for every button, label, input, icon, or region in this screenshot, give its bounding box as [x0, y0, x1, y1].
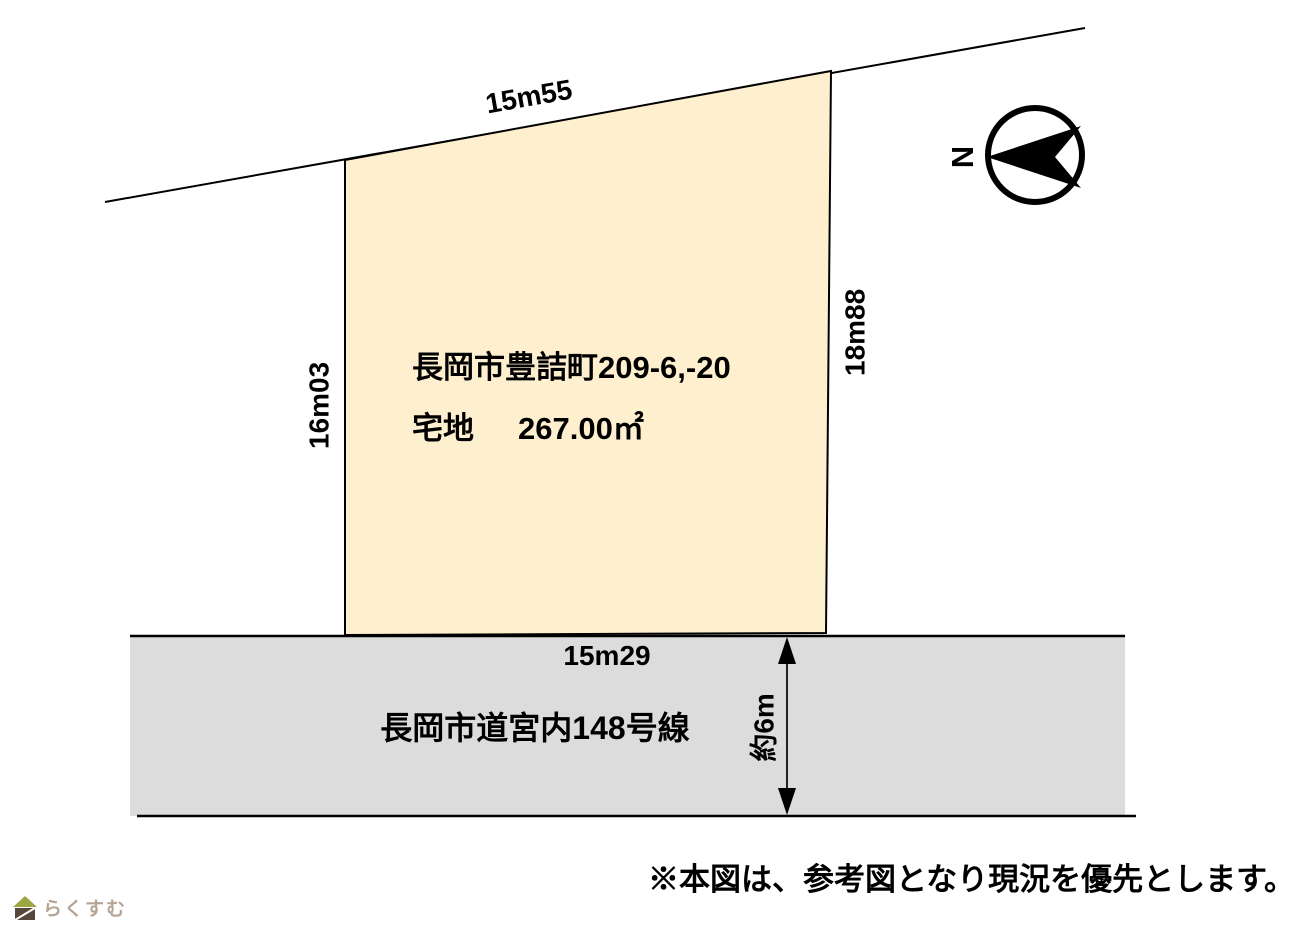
left-dimension-label: 16m03	[305, 335, 336, 475]
bottom-dimension-label: 15m29	[537, 641, 677, 672]
parcel-area: 267.00㎡	[518, 411, 644, 446]
house-logo-icon	[12, 895, 38, 921]
land-plot-diagram: 15m55 16m03 18m88 15m29 長岡市豊詰町209-6,-20 …	[0, 0, 1313, 933]
right-dimension-label: 18m88	[841, 262, 872, 402]
north-compass-icon	[987, 108, 1082, 202]
site-logo-text: らくすむ	[43, 894, 127, 921]
parcel-landtype-area: 宅地267.00㎡	[412, 412, 644, 446]
road-width-label: 約6m	[750, 662, 781, 792]
parcel-land-type: 宅地	[412, 411, 474, 446]
plot-drawing	[0, 0, 1313, 933]
site-logo: らくすむ	[12, 894, 127, 921]
compass-north-letter: N	[945, 137, 979, 177]
road-name-label: 長岡市道宮内148号線	[335, 711, 735, 746]
parcel-address: 長岡市豊詰町209-6,-20	[412, 351, 731, 385]
reference-note: ※本図は、参考図となり現況を優先とします。	[553, 863, 1295, 897]
